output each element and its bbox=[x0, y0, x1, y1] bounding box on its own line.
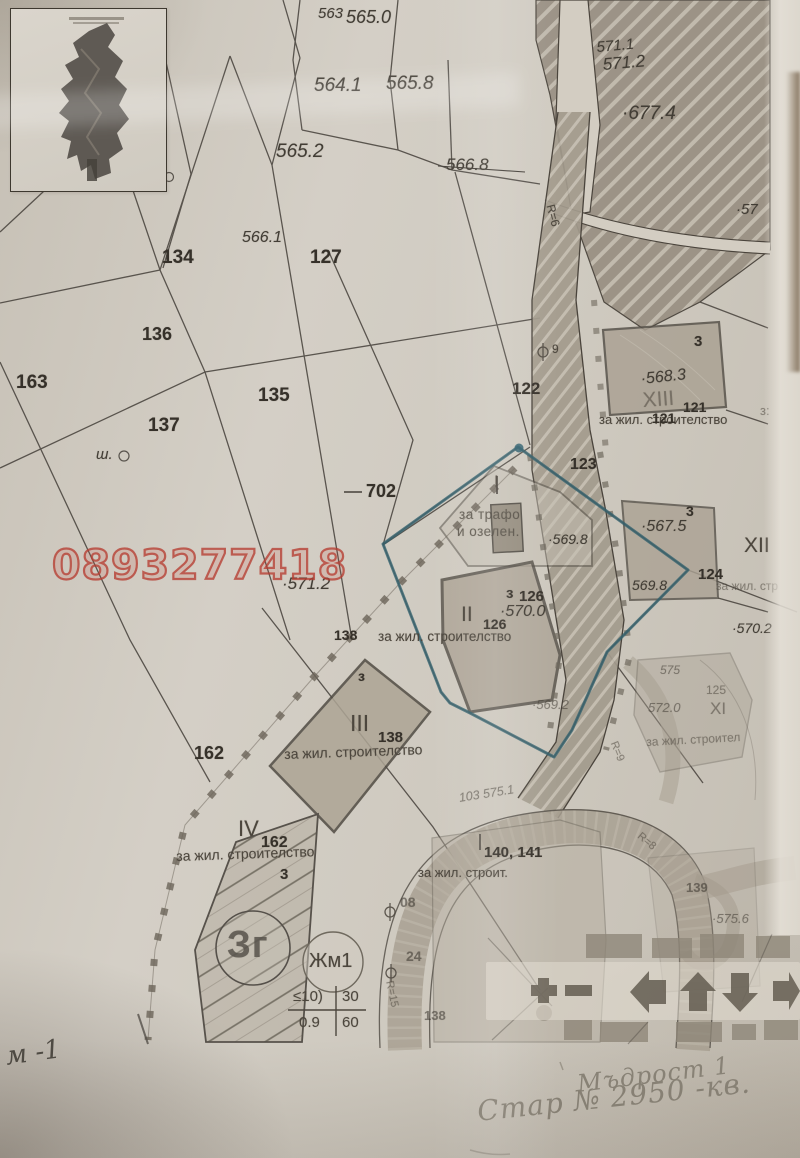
parcel-number: 162 bbox=[194, 744, 224, 762]
parcel-number: 136 bbox=[142, 325, 172, 343]
elevation-label: 565.2 bbox=[276, 142, 324, 161]
elevation-label: ·677.4 bbox=[622, 104, 676, 123]
parcel-number: 139 bbox=[686, 881, 708, 894]
paper-sheen bbox=[430, 0, 560, 1158]
zone-circle-label: Зг bbox=[227, 926, 269, 964]
zone-number: з bbox=[358, 669, 365, 683]
landuse-label: за жил. строителство bbox=[176, 844, 315, 863]
zone-number: 3 bbox=[686, 504, 694, 518]
elevation-label: ·567.5 bbox=[641, 519, 686, 535]
zone-number: 3 bbox=[694, 334, 702, 349]
bottom-shadow bbox=[0, 1040, 800, 1158]
upi-roman-numeral: XIII bbox=[642, 388, 675, 411]
zone-number: 3 bbox=[280, 867, 288, 882]
parcel-number: 08 bbox=[400, 895, 416, 909]
elevation-label: ·57 bbox=[736, 202, 758, 217]
zoning-parameter: ≤10) bbox=[293, 989, 323, 1004]
elevation-label: ·575.6 bbox=[712, 912, 749, 925]
table-edge bbox=[786, 72, 800, 372]
parcel-number: 134 bbox=[162, 248, 194, 267]
parcel-number: 137 bbox=[148, 416, 180, 435]
road-radius-label: R=8 bbox=[635, 831, 658, 853]
parcel-number: 125 bbox=[706, 684, 726, 696]
road-radius-label: R=15 bbox=[383, 980, 399, 1008]
road-radius-label: R=9 bbox=[608, 740, 626, 763]
elevation-label: 565.0 bbox=[346, 8, 391, 26]
parcel-number: 135 bbox=[258, 386, 290, 405]
elevation-label: 569.8 bbox=[632, 578, 667, 592]
elevation-label: 572.0 bbox=[648, 701, 681, 714]
well-label: ш. bbox=[96, 447, 113, 462]
survey-point-label: 702 bbox=[366, 482, 396, 500]
parcel-number: 163 bbox=[16, 373, 48, 392]
elevation-label: 575 bbox=[660, 664, 680, 676]
upi-roman-numeral: III bbox=[350, 712, 369, 735]
elevation-label: 563 bbox=[318, 6, 343, 21]
zoning-parameter: 30 bbox=[342, 989, 359, 1004]
upi-roman-numeral: IV bbox=[238, 818, 259, 840]
phone-watermark: 0893277418 bbox=[52, 541, 347, 589]
parcel-number: 123 bbox=[570, 457, 597, 473]
elevation-label: 571.2 bbox=[602, 52, 646, 73]
elevation-label: 566.1 bbox=[242, 230, 282, 246]
zone-circle-label: Жм1 bbox=[309, 951, 352, 971]
landuse-label: за жил. строителство bbox=[284, 742, 423, 761]
upi-roman-numeral: XI bbox=[710, 700, 726, 717]
parcel-number: 127 bbox=[310, 248, 342, 267]
zoning-parameter: 60 bbox=[342, 1015, 359, 1030]
parcel-number: 138 bbox=[334, 628, 357, 642]
parcel-number: 24 bbox=[406, 949, 422, 963]
parcel-number: 121 bbox=[652, 411, 675, 425]
elevation-label: ·568.3 bbox=[640, 367, 687, 388]
zoning-parameter: 0.9 bbox=[299, 1015, 320, 1030]
landuse-label: за жил. строител bbox=[646, 731, 741, 748]
scanned-map-photo: 563565.0564.1565.8565.2566.8566.1571.157… bbox=[0, 0, 800, 1158]
